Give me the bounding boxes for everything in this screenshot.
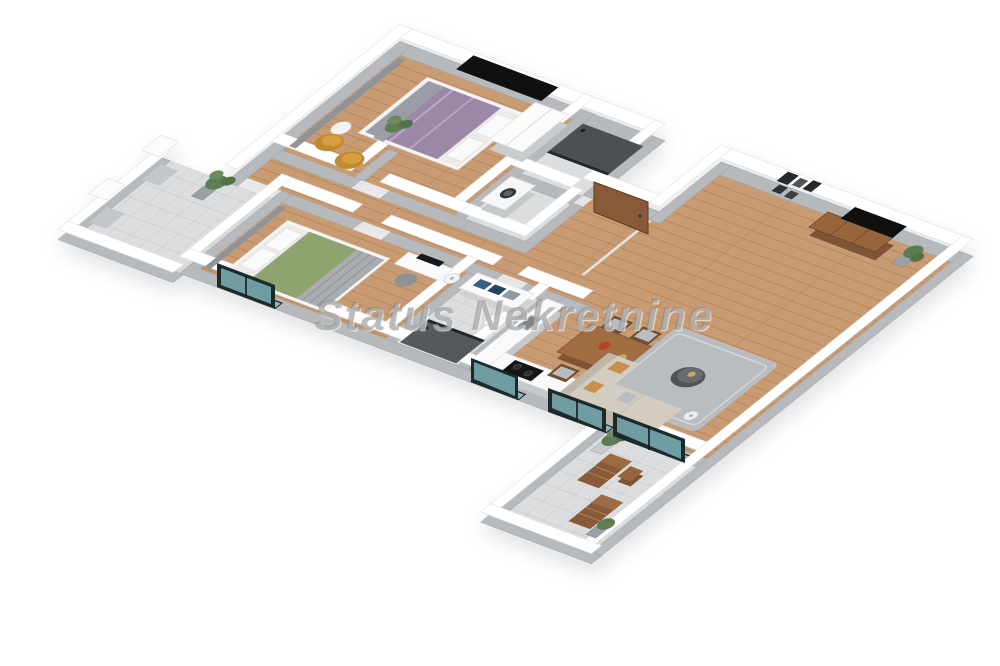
isometric-plan — [0, 0, 988, 564]
floor-plan-render — [0, 0, 1000, 666]
door-handle — [638, 214, 641, 217]
floor-plan-screenshot: Status Nekretnine — [0, 0, 1000, 666]
